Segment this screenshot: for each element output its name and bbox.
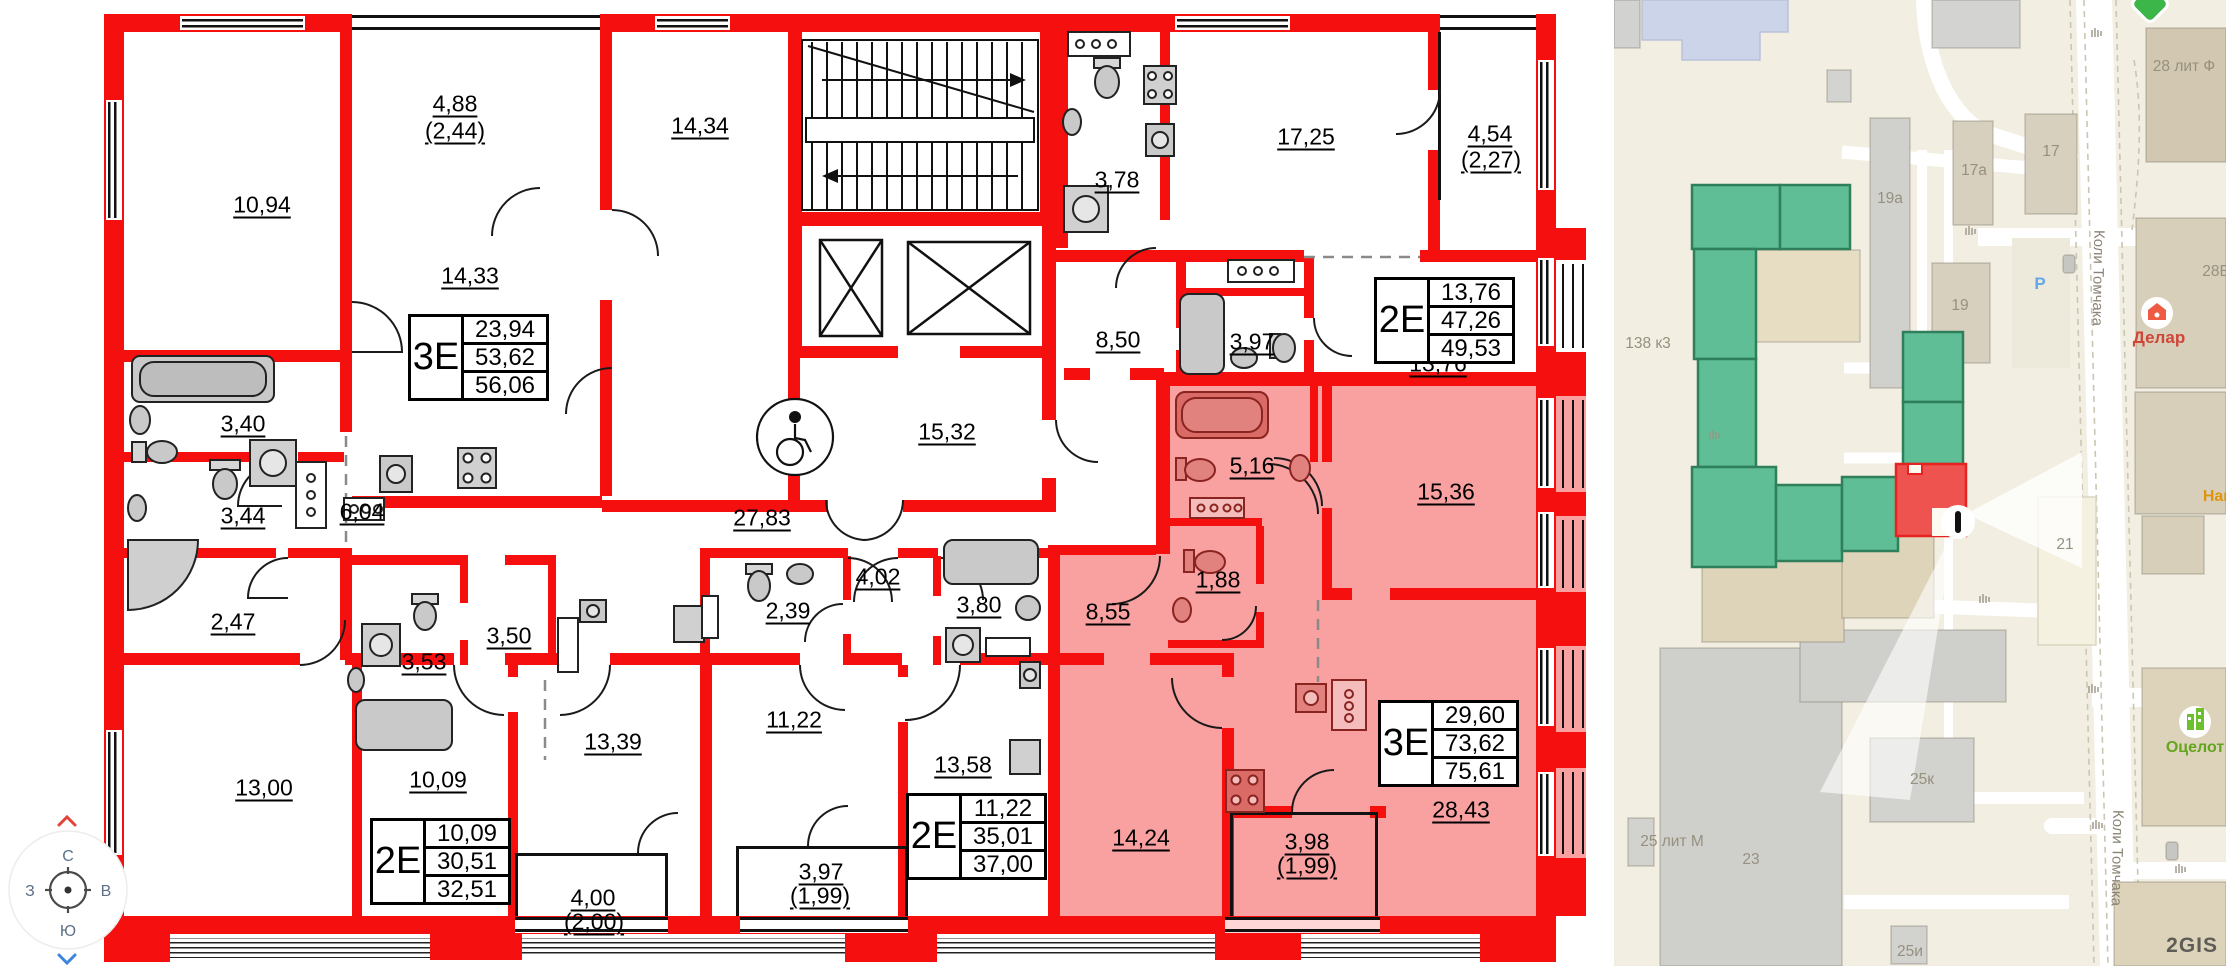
apartment-type: 2Е [909,796,959,877]
room-area-label: (2,00) [564,909,624,936]
building-label: 28 лит Ф [2153,58,2215,76]
apartment-area: 47,26 [1430,308,1512,336]
apartment-info-table: 2Е 10,09 30,51 32,51 [370,818,511,905]
room-area-label: 14,24 [1112,825,1170,852]
elevator-icon [820,240,1030,336]
apartment-total-area: 75,61 [1434,759,1516,784]
room-area-label: 13,39 [584,729,642,756]
room-area-label: 17,25 [1277,124,1335,151]
apartment-total-area: 56,06 [464,373,546,398]
apartment-info-table[interactable]: 3Е 29,60 73,62 75,61 [1378,700,1519,787]
building-label: 19 [1951,297,1968,315]
room-area-label: 8,50 [1096,327,1141,354]
room-area-label: (2,44) [425,118,485,145]
apartment-info-table: 2Е 13,76 47,26 49,53 [1374,277,1515,364]
building-label: 28Б [2202,263,2226,281]
room-area-label: 3,44 [221,503,266,530]
apartment-area: 30,51 [426,849,508,877]
room-area-label: 4,54 [1468,121,1513,148]
compass-west-label: З [25,883,35,900]
2gis-watermark: 2GIS [2166,934,2218,958]
apartment-type: 3Е [411,317,461,398]
building-label: 25к [1910,771,1934,789]
apartment-type: 3Е [1381,703,1431,784]
stairs-icon [802,40,1038,210]
room-area-label: 3,97 [799,859,844,886]
apartment-total-area: 32,51 [426,877,508,902]
room-area-label: 8,55 [1086,599,1131,626]
floor-plan[interactable]: 10,94 4,88 (2,44) 14,33 14,34 15,32 3,78… [0,0,1614,966]
apartment-living-area: 10,09 [426,821,508,849]
apartment-living-area: 23,94 [464,317,546,345]
room-area-label: 6,04 [340,499,385,526]
room-area-label: 3,53 [402,649,447,676]
street-name-label: Коли Томчака [2089,230,2108,326]
room-area-label: 4,88 [433,91,478,118]
ocelot-poi-icon[interactable] [2179,706,2211,738]
room-area-label: 2,47 [211,609,256,636]
room-area-label: 3,98 [1285,829,1330,856]
map-panel[interactable]: 28 лит Ф 17 17а 19а 28Б 19 138 к3 21 23 … [1614,0,2226,966]
apartment-area: 53,62 [464,345,546,373]
wheelchair-icon [757,399,833,475]
room-area-label: 3,50 [487,623,532,650]
room-area-label: 3,78 [1095,167,1140,194]
room-area-label: 14,34 [671,113,729,140]
building-label: 17 [2042,143,2059,161]
building-label: 21 [2056,536,2073,554]
building-label: 17а [1961,162,1987,180]
apartment-type: 2Е [1377,280,1427,361]
room-area-label: 27,83 [733,505,791,532]
apartment-info-table: 2Е 11,22 35,01 37,00 [906,793,1047,880]
delar-poi-icon[interactable] [2141,297,2173,329]
room-area-label: 11,22 [766,707,822,734]
room-area-label: 4,02 [856,564,901,591]
delar-poi-label[interactable]: Делар [2133,328,2185,348]
ocelot-poi-label[interactable]: Оцелот [2166,739,2224,757]
partial-poi-label: Нац [2203,488,2226,506]
screenshot-root: 10,94 4,88 (2,44) 14,33 14,34 15,32 3,78… [0,0,2226,966]
apartment-total-area: 37,00 [962,852,1044,877]
apartment-area: 73,62 [1434,731,1516,759]
room-area-label: 1,88 [1196,567,1241,594]
room-area-label: 2,39 [766,598,811,625]
room-area-label: 13,58 [934,752,992,779]
room-area-label: 15,32 [918,419,976,446]
pin-icon[interactable] [2130,0,2170,24]
room-area-label: 10,09 [409,767,467,794]
compass-north-label: С [62,848,74,865]
map-marker[interactable] [1941,505,1975,539]
building-label: 25 лит М [1640,833,1704,851]
room-area-label: 3,40 [221,411,266,438]
room-area-label: 14,33 [441,263,499,290]
building-label: 138 к3 [1625,335,1671,353]
room-area-label: 13,00 [235,775,293,802]
chevron-down-button[interactable] [59,955,75,963]
room-area-label: 28,43 [1432,797,1490,824]
apartment-info-table: 3Е 23,94 53,62 56,06 [408,314,549,401]
apartment-area: 35,01 [962,824,1044,852]
room-area-label: 4,00 [571,885,616,912]
building-label: 23 [1742,851,1759,869]
apartment-type: 2Е [373,821,423,902]
compass-east-label: В [101,883,112,900]
compass-south-label: Ю [60,923,76,940]
room-area-label: 15,36 [1417,479,1475,506]
apartment-total-area: 49,53 [1430,336,1512,361]
chevron-up-button[interactable] [59,817,75,825]
floor-plan-drawing [0,0,1614,966]
room-area-label: 10,94 [233,192,291,219]
room-area-label: 3,80 [957,592,1002,619]
room-area-label: 5,16 [1230,453,1275,480]
apartment-living-area: 13,76 [1430,280,1512,308]
street-name-label: Коли Томчака [2108,810,2127,906]
room-area-label: 3,97 [1230,329,1275,356]
room-area-label: (1,99) [790,883,850,910]
room-area-label: (1,99) [1277,853,1337,880]
room-area-label: (2,27) [1461,147,1521,174]
building-label: 25и [1897,943,1923,961]
building-label: 19а [1877,190,1903,208]
parking-icon: P [2034,274,2045,294]
apartment-living-area: 11,22 [962,796,1044,824]
apartment-living-area: 29,60 [1434,703,1516,731]
